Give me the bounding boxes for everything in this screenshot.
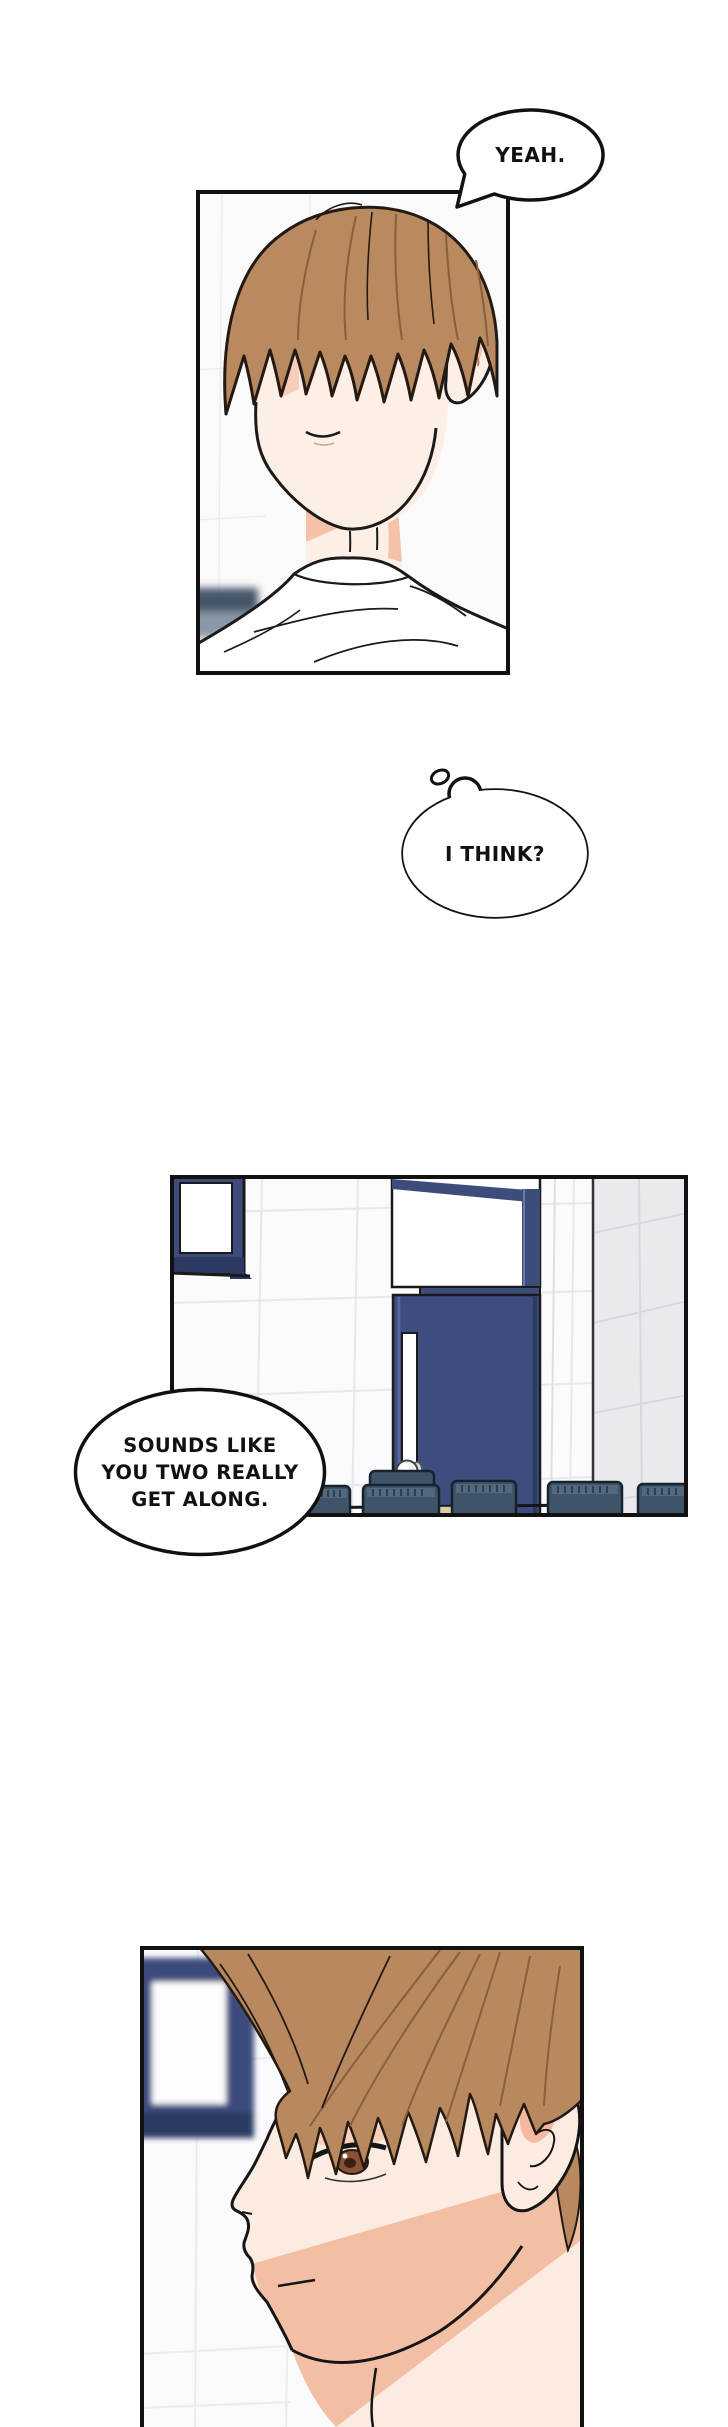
speech-bubble-get-along: SOUNDS LIKE YOU TWO REALLY GET ALONG. [73,1387,327,1557]
panel2-left-window [170,1175,252,1279]
bubble-line-3: GET ALONG. [131,1486,269,1513]
speech-bubble-yeah: YEAH. [440,103,620,233]
thought-bubble-think-text: I THINK? [403,792,587,915]
webtoon-page: YEAH. I THINK? SOUNDS LIKE YOU TWO REALL… [0,0,728,2427]
bubble-line-1: SOUNDS LIKE [123,1432,276,1459]
chair [638,1484,688,1517]
panel-3-artwork [140,1946,584,2427]
chair [363,1471,439,1517]
chair [452,1481,516,1517]
bubble-line-2: YOU TWO REALLY [101,1459,298,1486]
thought-bubble-think: I THINK? [395,762,595,927]
thought-dot [429,767,451,786]
panel-1-artwork [196,190,510,675]
speech-bubble-yeah-text: YEAH. [458,110,603,200]
panel2-transom-window [392,1175,540,1303]
speech-bubble-get-along-text: SOUNDS LIKE YOU TWO REALLY GET ALONG. [73,1387,327,1557]
chair [548,1482,622,1517]
door-window-slit [402,1333,417,1463]
